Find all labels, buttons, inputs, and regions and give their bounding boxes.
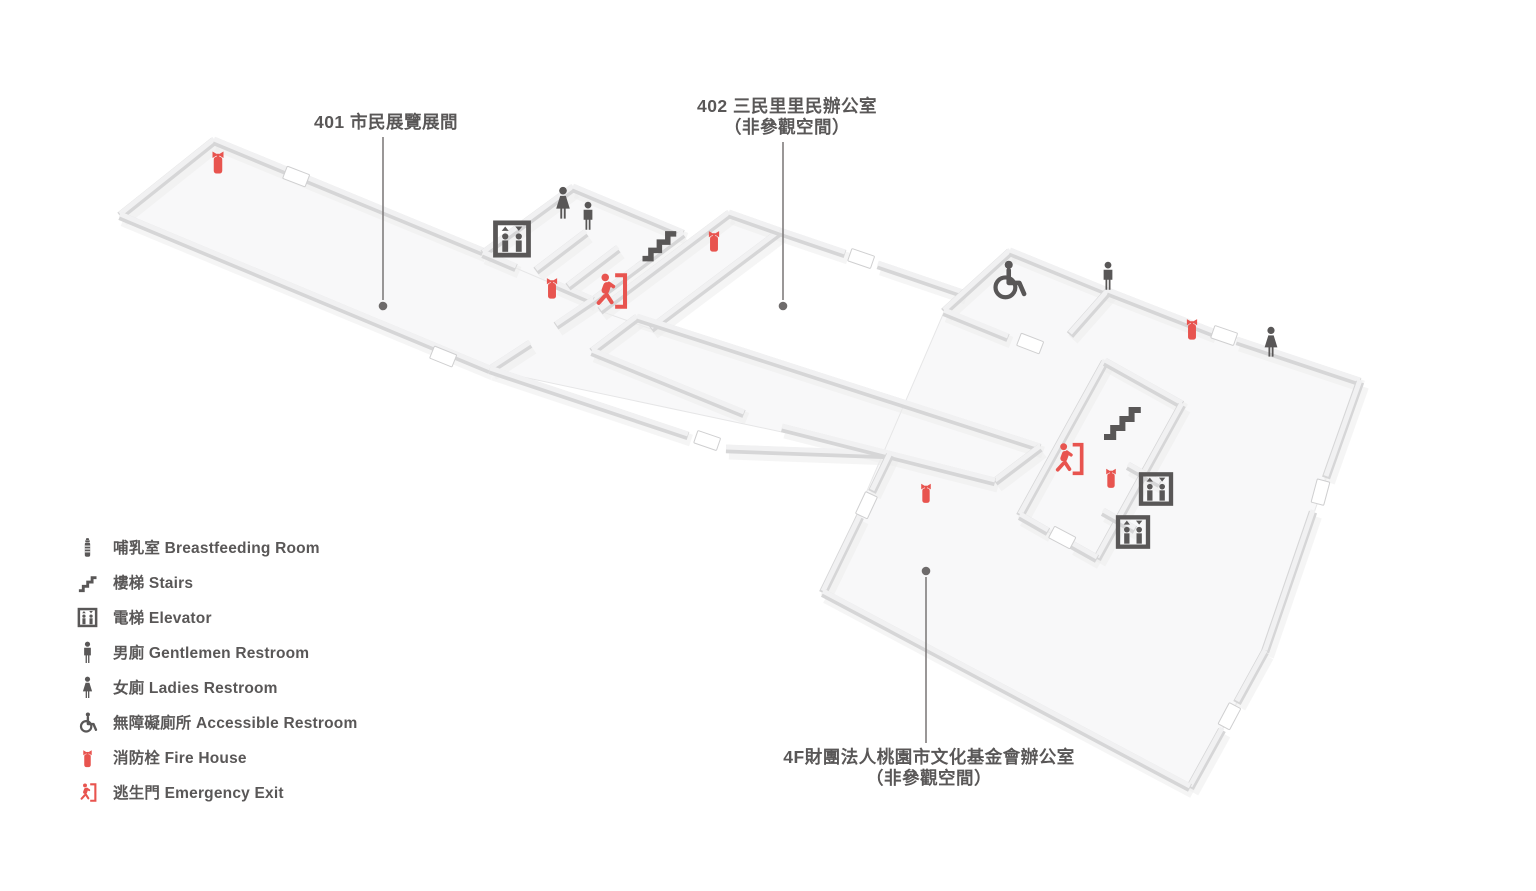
area-label-line: 401 市民展覽展間 (314, 112, 458, 133)
legend-item-label: 逃生門 Emergency Exit (113, 781, 284, 803)
legend-item-label: 樓梯 Stairs (113, 571, 193, 593)
floor-map-page: 哺乳室 Breastfeeding Room樓梯 Stairs電梯 Elevat… (0, 0, 1536, 891)
accessible-restroom-icon (74, 710, 100, 734)
legend-item-label: 電梯 Elevator (113, 606, 212, 628)
area-label-401: 401 市民展覽展間 (314, 112, 458, 133)
legend-item-elevator: 電梯 Elevator (74, 605, 357, 629)
emergency-exit-icon (74, 780, 100, 804)
legend: 哺乳室 Breastfeeding Room樓梯 Stairs電梯 Elevat… (74, 535, 357, 815)
legend-item-ladies-restroom: 女廁 Ladies Restroom (74, 675, 357, 699)
legend-item-label: 無障礙廁所 Accessible Restroom (113, 711, 357, 733)
leader-dot (922, 567, 931, 576)
leader-dot (379, 302, 388, 311)
area-label-line: 402 三民里里民辦公室 (697, 96, 877, 117)
area-label-line: 4F財團法人桃園市文化基金會辦公室 (783, 747, 1074, 768)
breastfeeding-room-icon (74, 535, 100, 559)
ladies-restroom-icon (74, 675, 100, 699)
legend-item-stairs: 樓梯 Stairs (74, 570, 357, 594)
legend-item-breastfeeding-room: 哺乳室 Breastfeeding Room (74, 535, 357, 559)
gentlemen-restroom-icon (74, 640, 100, 664)
stairs-icon (74, 570, 100, 594)
legend-item-label: 女廁 Ladies Restroom (113, 676, 278, 698)
area-label-4f: 4F財團法人桃園市文化基金會辦公室（非參觀空間） (783, 747, 1074, 789)
legend-item-gentlemen-restroom: 男廁 Gentlemen Restroom (74, 640, 357, 664)
legend-item-accessible-restroom: 無障礙廁所 Accessible Restroom (74, 710, 357, 734)
fire-extinguisher-icon (74, 745, 100, 769)
legend-item-fire-extinguisher: 消防栓 Fire House (74, 745, 357, 769)
area-label-402: 402 三民里里民辦公室（非參觀空間） (697, 96, 877, 138)
legend-item-label: 男廁 Gentlemen Restroom (113, 641, 309, 663)
area-label-line: （非參觀空間） (697, 117, 877, 138)
legend-item-label: 消防栓 Fire House (113, 746, 247, 768)
leader-dot (779, 302, 788, 311)
legend-item-label: 哺乳室 Breastfeeding Room (113, 536, 320, 558)
area-label-line: （非參觀空間） (783, 768, 1074, 789)
legend-item-emergency-exit: 逃生門 Emergency Exit (74, 780, 357, 804)
elevator-icon (74, 605, 100, 629)
